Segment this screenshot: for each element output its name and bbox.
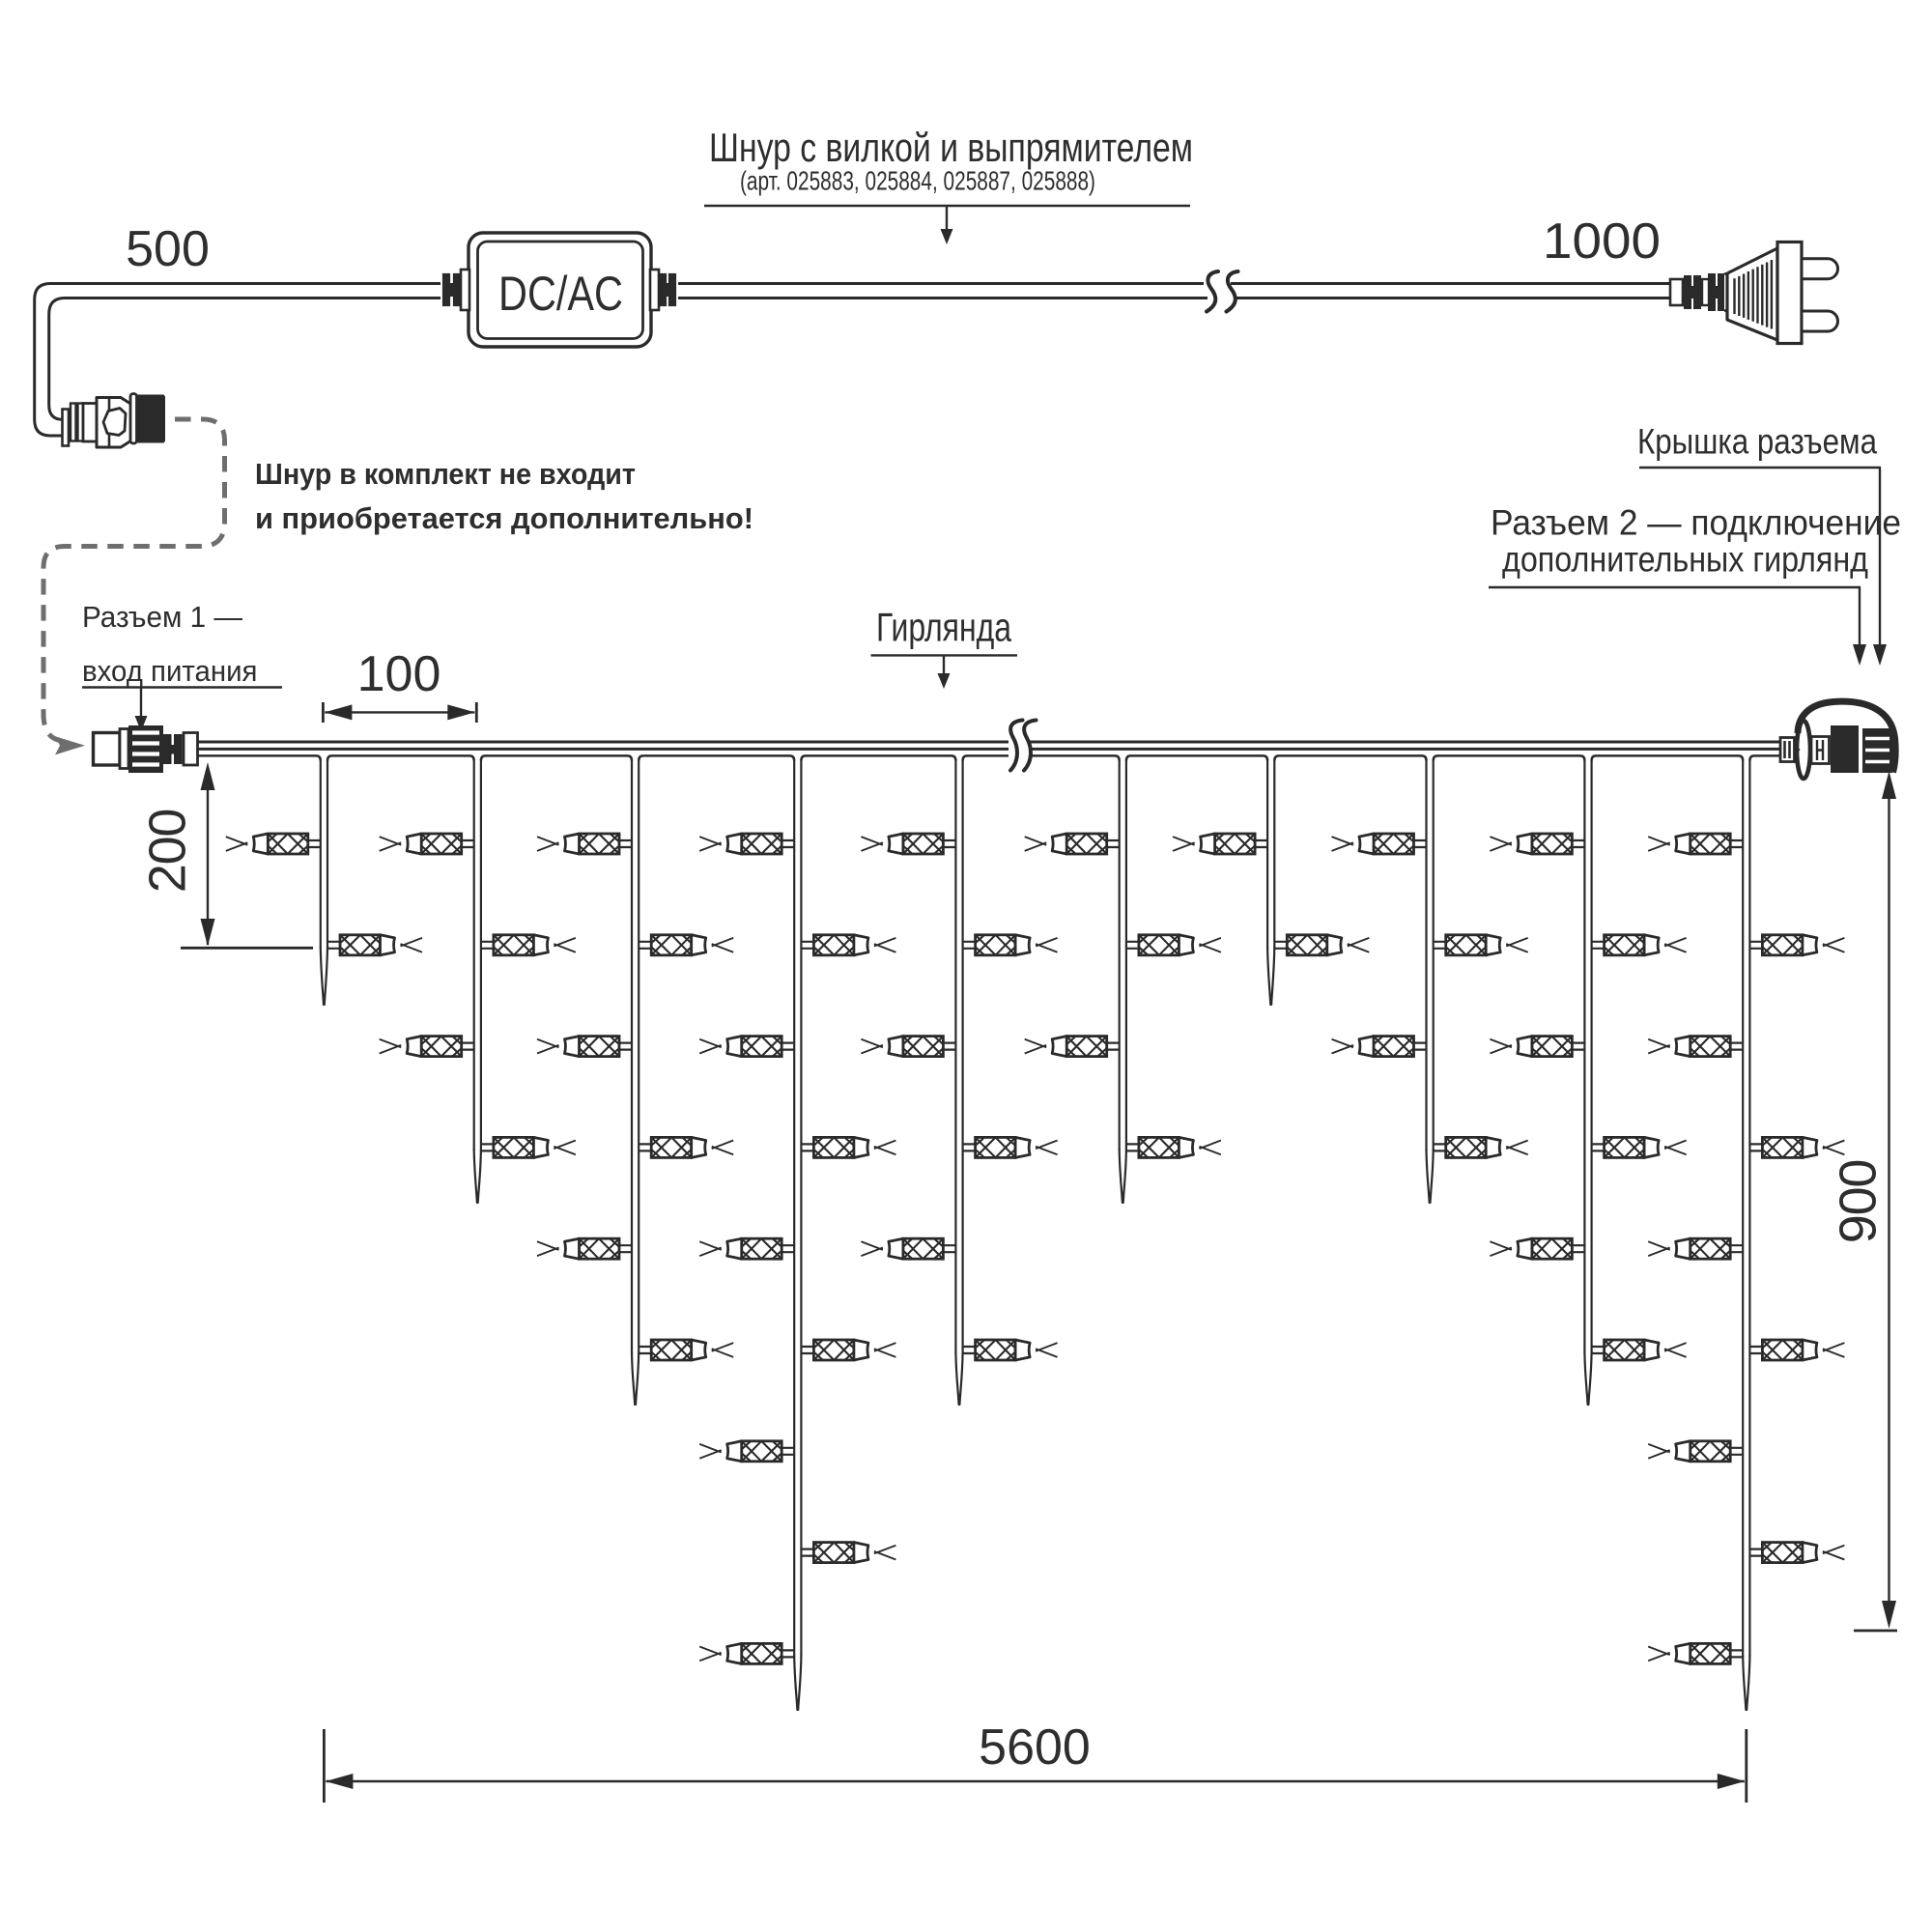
svg-text:5600: 5600 <box>979 1719 1091 1776</box>
svg-text:Шнур с вилкой и выпрямителем: Шнур с вилкой и выпрямителем <box>709 125 1193 170</box>
svg-text:Разъем 2 — подключение: Разъем 2 — подключение <box>1491 503 1901 543</box>
svg-text:900: 900 <box>1830 1160 1888 1244</box>
svg-text:DC/AC: DC/AC <box>498 267 623 321</box>
svg-text:(арт. 025883, 025884, 025887,: (арт. 025883, 025884, 025887, 025888) <box>740 166 1095 196</box>
svg-text:Гирлянда: Гирлянда <box>876 605 1011 650</box>
svg-text:500: 500 <box>126 221 210 277</box>
svg-text:дополнительных гирлянд: дополнительных гирлянд <box>1502 540 1868 580</box>
svg-text:Разъем 1 —: Разъем 1 — <box>82 600 242 634</box>
svg-text:Крышка разъема: Крышка разъема <box>1637 422 1877 462</box>
svg-text:вход питания: вход питания <box>82 654 258 688</box>
svg-text:1000: 1000 <box>1543 213 1661 270</box>
svg-text:и приобретается дополнительно!: и приобретается дополнительно! <box>255 501 753 535</box>
svg-text:200: 200 <box>139 810 197 894</box>
svg-text:100: 100 <box>357 646 441 702</box>
svg-text:Шнур в комплект не входит: Шнур в комплект не входит <box>255 457 636 491</box>
